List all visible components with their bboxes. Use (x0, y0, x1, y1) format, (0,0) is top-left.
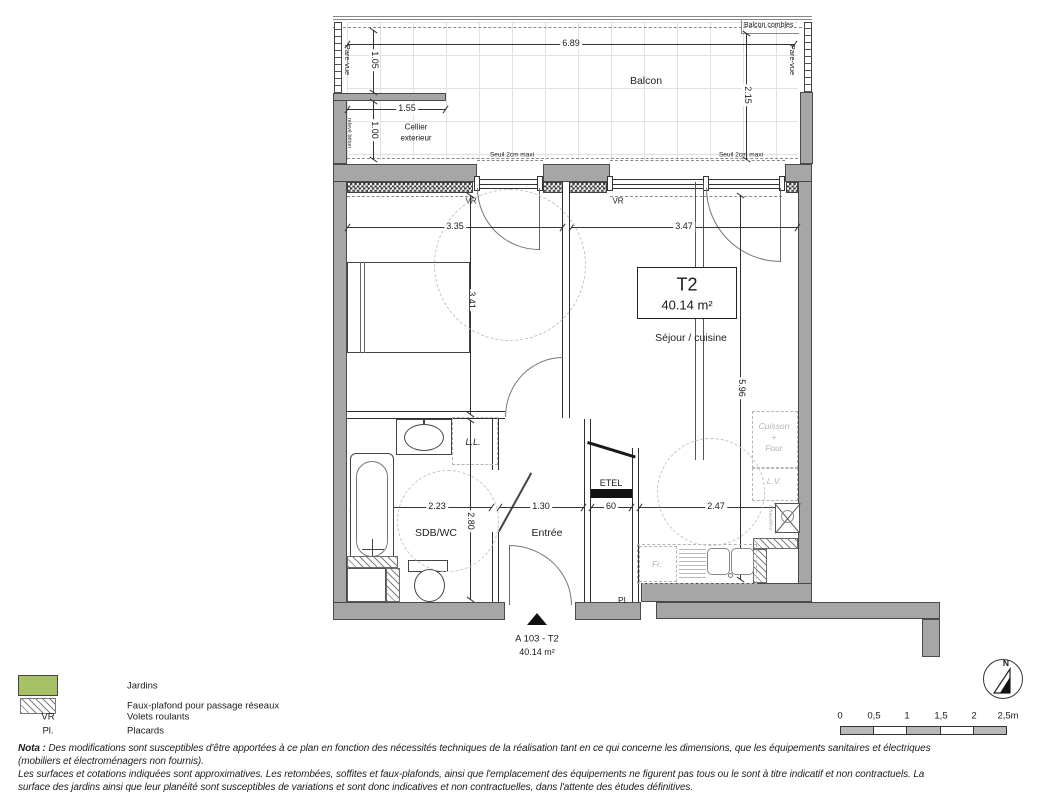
nota-line-4: surface des jardins ainsi que leur plané… (18, 782, 693, 793)
lave-vaisselle-label: L.V. (767, 476, 782, 486)
faux-plafond-band (347, 182, 473, 193)
wall-left (333, 164, 347, 620)
combles-mark-line (741, 33, 799, 34)
legend-label-jardins: Jardins (127, 681, 158, 692)
kitchen-faucet-icon (728, 573, 733, 578)
washbasin-bowl (404, 424, 444, 451)
wall-releve-beton (333, 94, 347, 164)
etel-label: ETEL (600, 478, 623, 488)
chaudiere-circle (781, 510, 794, 523)
nota-label: Nota : (18, 743, 46, 754)
scale-tick: 1,5 (934, 711, 947, 722)
faux-plafond-band (786, 182, 798, 193)
legend-key-vr: VR (41, 712, 54, 723)
turning-circle (434, 189, 586, 341)
sink-drainer (679, 548, 706, 578)
scale-bar-segment (973, 726, 1007, 735)
cellier-label: exterieur (400, 134, 431, 143)
wall-top (333, 164, 477, 182)
scale-tick: 2,5m (997, 711, 1018, 722)
washbasin-tap-icon (423, 419, 425, 425)
lave-linge-zone (452, 417, 498, 465)
balcon-label: Balcon (630, 75, 662, 87)
scale-bar-segment (906, 726, 941, 735)
placard-label: Pl. (618, 595, 628, 605)
seuil-label-left: Seuil 2cm maxi (490, 152, 534, 159)
window-frame-block (607, 176, 613, 191)
wall-right (798, 164, 812, 602)
legend-key-pl: Pl. (42, 726, 53, 737)
dim-entree-width: 1.30 (530, 502, 552, 512)
vr-label-right: VR (612, 197, 623, 206)
wall-bottom (575, 602, 641, 620)
kitchen-sink-bowl (731, 548, 754, 575)
wall-cellier-divider (333, 93, 446, 101)
pare-vue-screen-left (334, 22, 342, 94)
wall-top (543, 164, 610, 182)
dim-105: 1.05 (369, 49, 379, 71)
dim-155: 1.55 (396, 104, 418, 114)
door-leaf (780, 188, 781, 262)
cuisson-label: Cuisson (759, 421, 790, 431)
floor-plan-page: Balcon combles Balcon Pare-vue Pare-vue … (0, 0, 1049, 800)
legend-label-volets: Volets roulants (127, 712, 189, 723)
door-swing-chambre (505, 357, 563, 417)
balcony-top-line (333, 16, 812, 17)
duct-box (347, 568, 386, 602)
wall-bottom (333, 602, 505, 620)
wc-bowl (414, 569, 445, 602)
dim-etel-width: 60 (604, 502, 618, 512)
entrance-marker-icon (527, 613, 547, 625)
bed-headboard-line (360, 262, 361, 353)
cellier-label: Cellier (405, 123, 428, 132)
fridge-label: Fr. (652, 559, 662, 569)
legend-label-faux-plafond: Faux-plafond pour passage réseaux (127, 701, 279, 712)
scale-tick: 1 (904, 711, 909, 722)
compass-needle-icon (988, 667, 1020, 697)
dim-sejour-height: 5.96 (736, 377, 746, 399)
etel-sloped-wall (587, 441, 636, 458)
nota-text: Des modifications sont susceptibles d'êt… (48, 743, 930, 754)
wall-top (785, 164, 812, 182)
nota-line-3: Les surfaces et cotations indiquées sont… (18, 769, 924, 780)
legend-label-placards: Placards (127, 726, 164, 737)
wall-balcony-right (800, 92, 813, 164)
nota-line-1: Nota : Des modifications sont susceptibl… (18, 743, 930, 754)
turning-circle (657, 438, 765, 546)
sejour-label: Séjour / cuisine (655, 332, 727, 344)
faux-plafond-band (543, 182, 607, 193)
scale-bar-segment (873, 726, 907, 735)
turning-circle (397, 470, 499, 572)
scale-bar-segment (940, 726, 974, 735)
releve-beton-label: relevé béton (346, 116, 352, 150)
dim-sejour-width: 3.47 (673, 222, 695, 232)
hatched-duct (386, 568, 400, 602)
wall-bottom-kitchen (641, 583, 812, 602)
door-leaf (509, 545, 510, 605)
dim-balcony-width: 6.89 (560, 39, 582, 49)
hatched-duct (347, 556, 398, 568)
door-leaf-sdb (498, 472, 532, 532)
scale-tick: 2 (971, 711, 976, 722)
entree-label: Entrée (532, 527, 563, 539)
window-threshold-dashed (477, 160, 543, 161)
scale-tick: 0 (837, 711, 842, 722)
balcon-combles-label: Balcon combles (744, 22, 793, 29)
unit-type-label: T2 (676, 275, 697, 296)
door-swing-window-sejour (706, 188, 781, 262)
unit-ref-area: 40.14 m² (519, 647, 555, 657)
faux-plafond-limit-dashed (347, 196, 473, 197)
scale-bar-segment (840, 726, 874, 735)
cuisson-label: + (772, 432, 777, 442)
door-swing-entree (509, 545, 572, 605)
scale-tick: 0,5 (867, 711, 880, 722)
kitchen-sink-bowl (707, 548, 730, 575)
cuisson-label: Four (765, 443, 782, 453)
legend-swatch-jardins (18, 675, 58, 696)
etel-shelf-bar (591, 489, 632, 498)
wall-step-exterior (656, 602, 940, 619)
dim-100: 1.00 (369, 119, 379, 141)
bathtub-faucet-icon (362, 549, 384, 550)
seuil-label-right: Seuil 2cm maxi (719, 152, 763, 159)
pare-vue-screen-right (804, 22, 812, 100)
bed-headboard-line (364, 262, 365, 353)
window-threshold-dashed (610, 160, 785, 161)
hatched-duct (753, 538, 798, 549)
unit-ref-label: A 103 - T2 (515, 634, 559, 645)
nota-line-2: (mobiliers et électroménagers non fourni… (18, 756, 204, 767)
dim-balcony-depth: 2.15 (742, 84, 752, 106)
unit-area-label: 40.14 m² (661, 298, 712, 313)
chaudiere-label: Chaudière (767, 503, 773, 532)
wall-stub-exterior (922, 619, 940, 657)
ceiling-beam-line (695, 182, 704, 460)
